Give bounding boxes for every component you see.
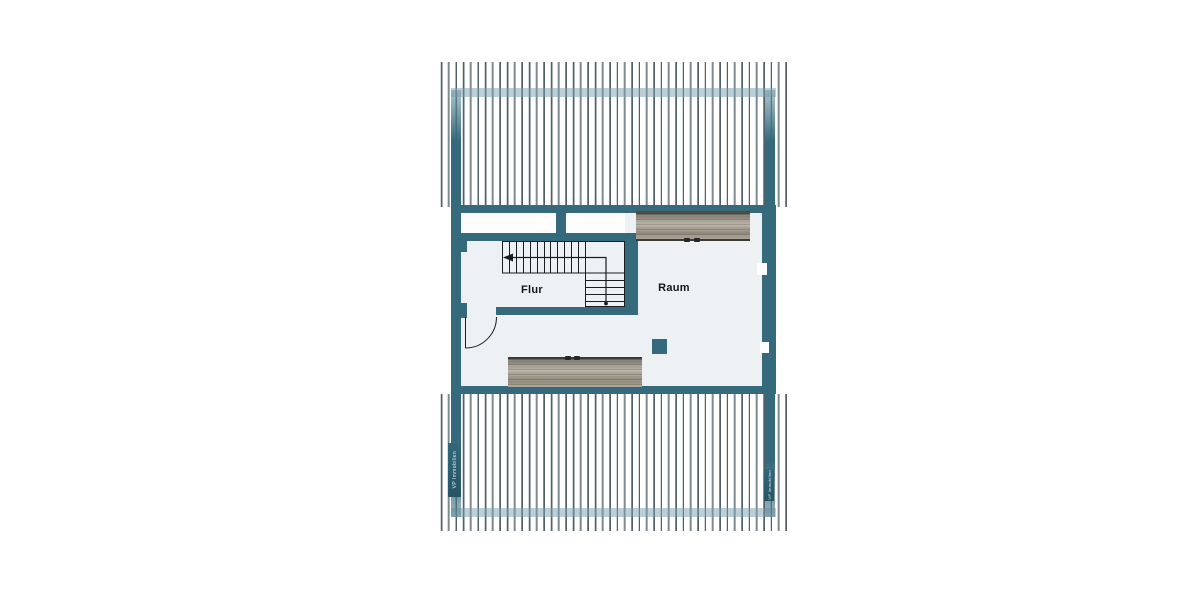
watermark-badge-left: VP Immobilien bbox=[448, 443, 461, 497]
wall-right-upper bbox=[765, 90, 775, 205]
door-swing bbox=[466, 317, 497, 348]
stair-walk-line bbox=[503, 254, 608, 306]
chimney-block bbox=[652, 339, 667, 354]
watermark-text-right: VP Immobilien bbox=[767, 470, 772, 500]
walk-line-start-dot bbox=[604, 302, 608, 306]
watermark-badge-right: VP Immobilien bbox=[764, 469, 774, 501]
wardrobe-top bbox=[636, 211, 750, 241]
floorplan: Flur Raum VP Immobilien VP Immobilien bbox=[0, 0, 1200, 600]
wardrobe-knob bbox=[565, 356, 571, 360]
wardrobe-knob bbox=[694, 238, 700, 242]
roof-boundary-band-top bbox=[451, 88, 776, 97]
wardrobe-knob bbox=[684, 238, 690, 242]
roof-hatch-top bbox=[435, 62, 787, 207]
roof-boundary-band-bottom bbox=[451, 508, 776, 517]
room-label-raum: Raum bbox=[644, 281, 704, 295]
watermark-text-left: VP Immobilien bbox=[452, 451, 458, 488]
wardrobe-bottom bbox=[508, 357, 642, 387]
door-swing-arc bbox=[466, 317, 497, 348]
wardrobe-knob bbox=[574, 356, 580, 360]
walk-direction-arrow bbox=[503, 254, 513, 262]
room-label-flur: Flur bbox=[502, 283, 562, 297]
wall-left-upper bbox=[451, 90, 461, 205]
